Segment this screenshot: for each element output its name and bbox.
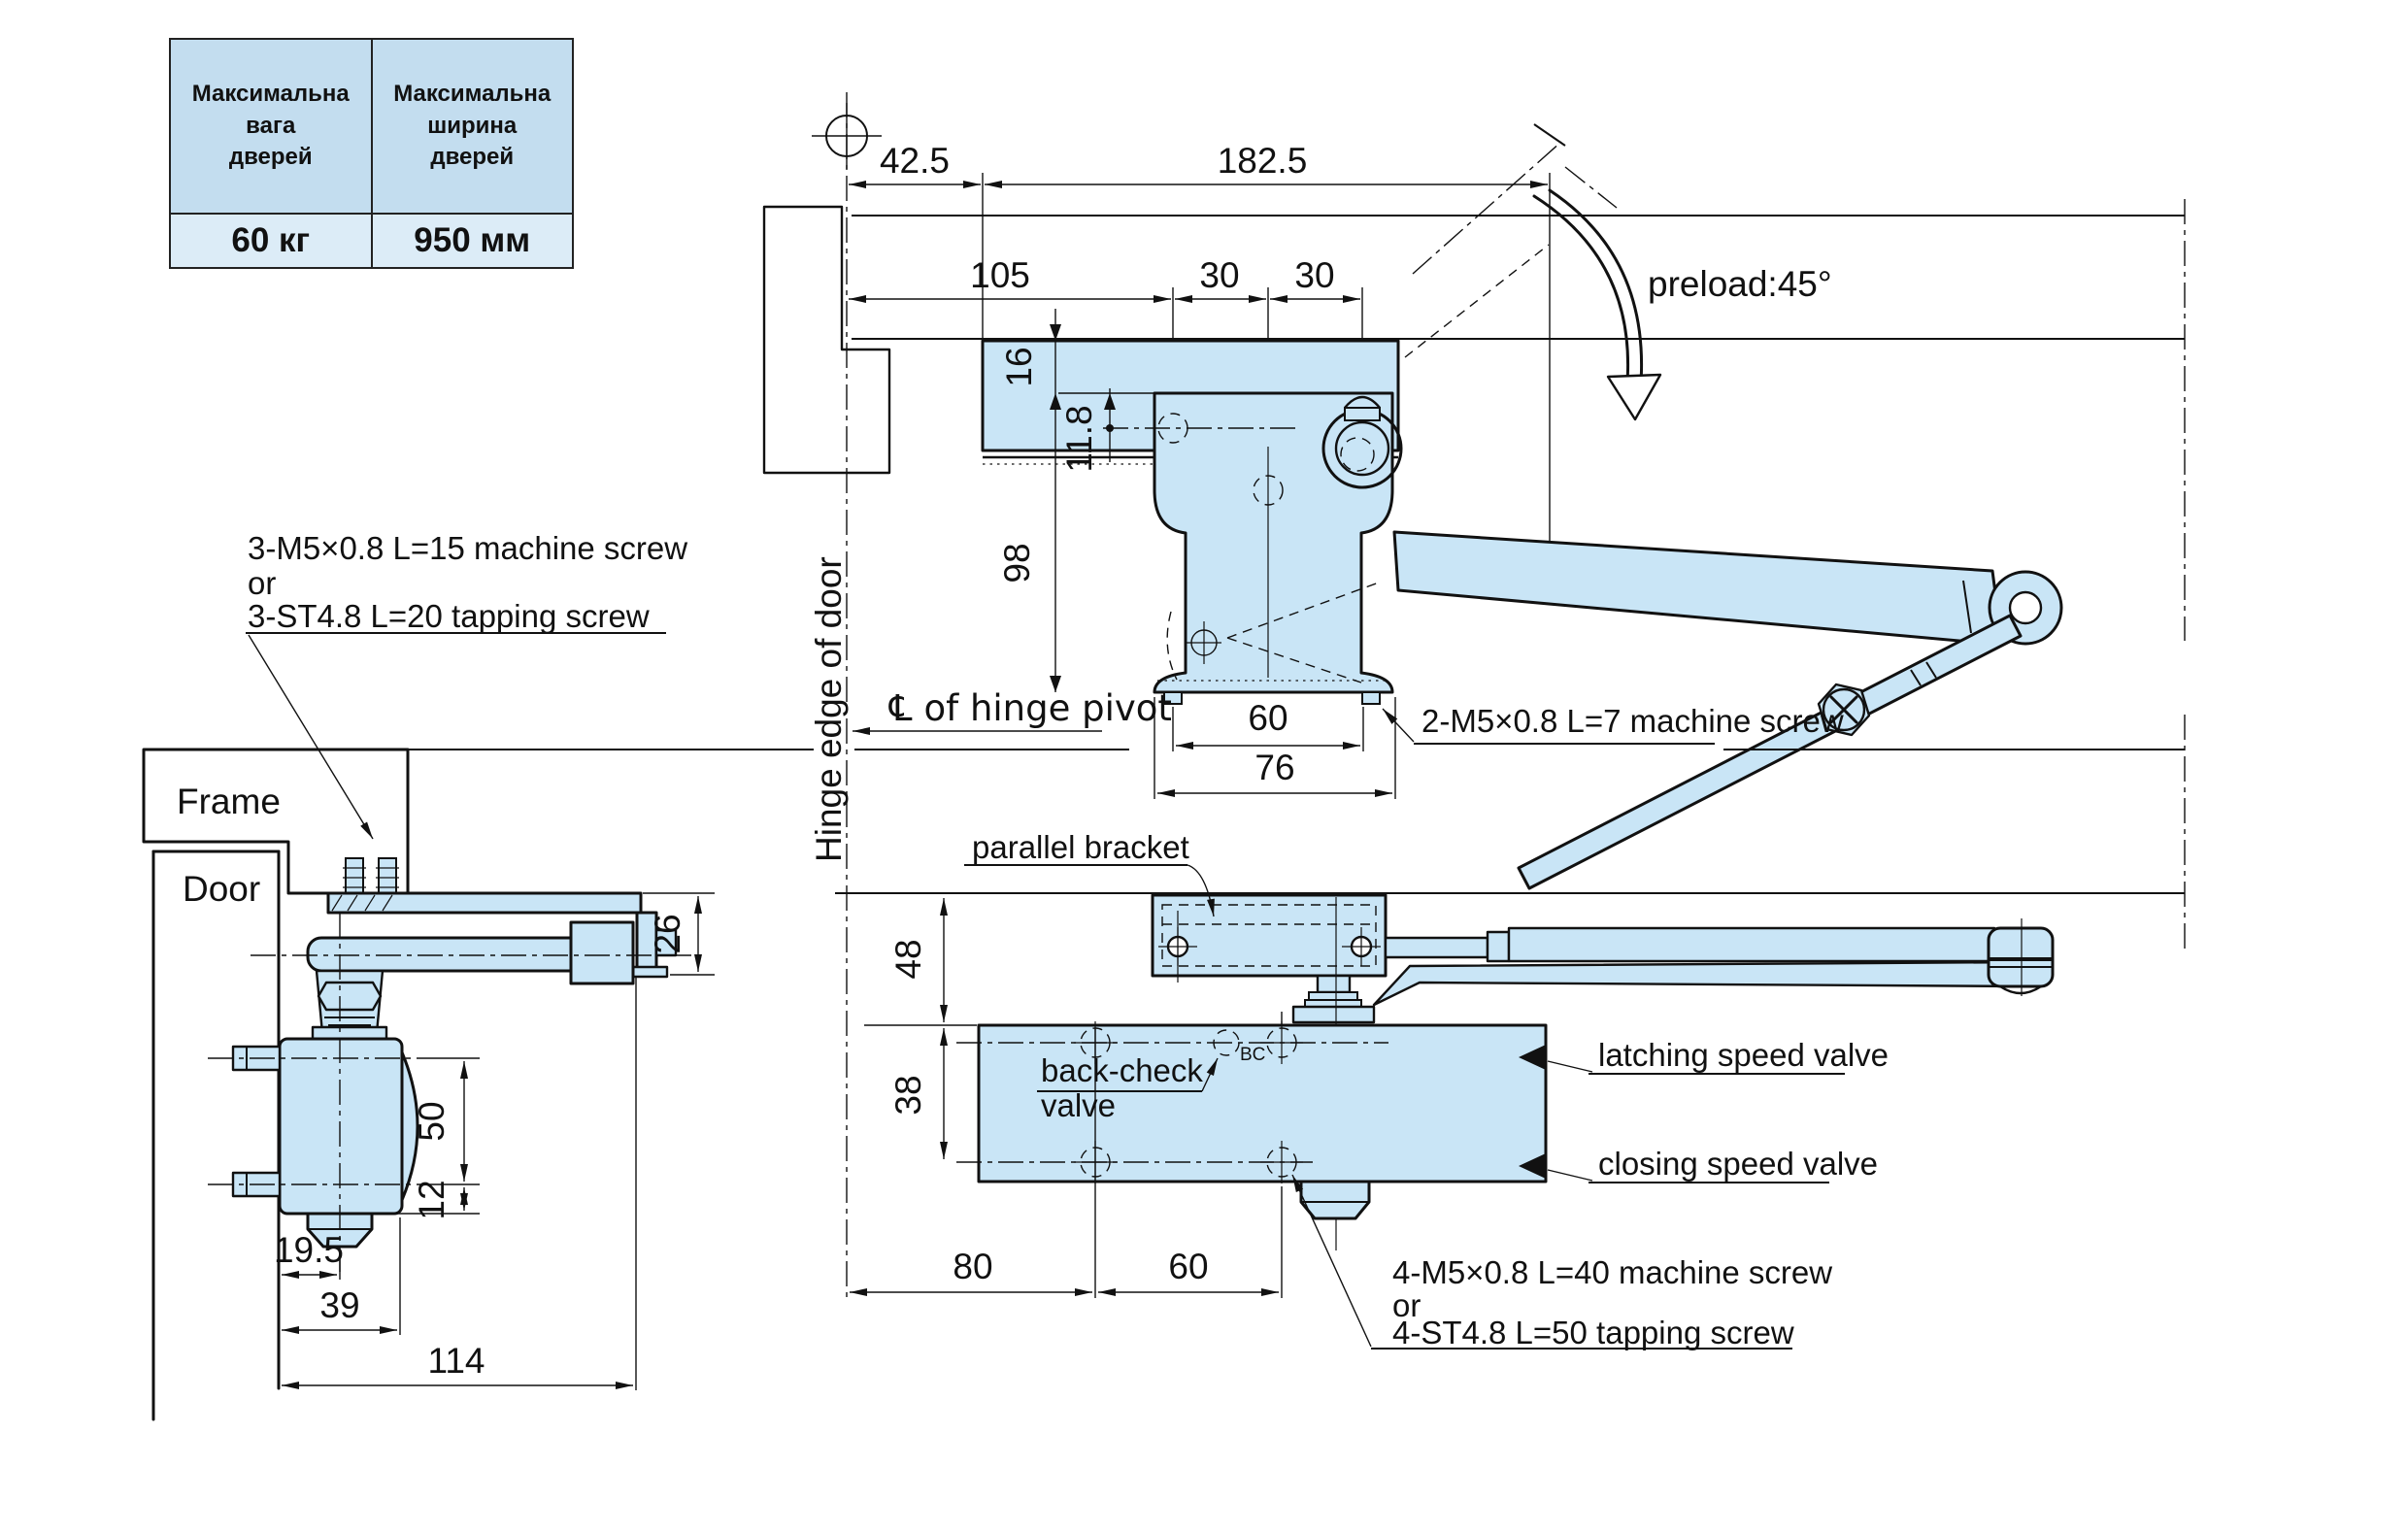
label-frame: Frame (177, 782, 281, 821)
label-closing: closing speed valve (1598, 1146, 1878, 1182)
preload-annotation: preload:45° (1405, 124, 1832, 419)
note-4m5-line3: 4-ST4.8 L=50 tapping screw (1392, 1315, 1794, 1350)
note-3m5: 3-M5×0.8 L=15 machine screw or 3-ST4.8 L… (246, 530, 687, 839)
note-4m5: 4-M5×0.8 L=40 machine screw or 4-ST4.8 L… (1292, 1175, 1832, 1350)
main-arm (1394, 532, 2061, 645)
closer-body-plan (1154, 393, 1392, 692)
note-latching-valve: latching speed valve (1519, 1037, 1889, 1074)
side-view: Frame Door 3-M5×0.8 L=15 machine screw o… (144, 530, 715, 1419)
preload-arrowhead-icon (1608, 375, 1660, 419)
header-line: дверей (229, 142, 313, 173)
datum-target-icon (812, 103, 882, 169)
dim-182-5: 182.5 (1218, 141, 1308, 181)
dim-16: 16 (999, 347, 1039, 386)
mounting-screw-right (1362, 692, 1380, 704)
note-4m5-line1: 4-M5×0.8 L=40 machine screw (1392, 1254, 1832, 1290)
label-hinge-edge-of-door: Hinge edge of door (809, 556, 849, 862)
dim-98: 98 (997, 543, 1037, 583)
dim-26: 26 (648, 914, 687, 953)
spec-value-max-weight: 60 кг (171, 215, 371, 267)
spec-header-max-weight: Максимальна вага дверей (171, 40, 371, 213)
dim-80: 80 (953, 1247, 992, 1286)
spec-table-header-row: Максимальна вага дверей Максимальна шири… (171, 40, 572, 213)
dim-60-parallel: 60 (1168, 1247, 1208, 1286)
header-line: Максимальна (192, 79, 350, 110)
parallel-bracket (1153, 895, 1386, 983)
dim-42-5: 42.5 (880, 141, 950, 181)
label-cl-hinge-pivot: ℄ of hinge pivot (888, 687, 1172, 729)
dim-19-5: 19.5 (274, 1230, 344, 1270)
note-3m5-line3: 3-ST4.8 L=20 tapping screw (248, 598, 650, 634)
label-preload: preload:45° (1648, 264, 1832, 304)
door-closer-installation-drawing: 42.5 182.5 105 30 30 (0, 0, 2408, 1533)
note-2m5: 2-M5×0.8 L=7 machine screw (1383, 703, 1844, 744)
dim-11-8: 11.8 (1059, 405, 1099, 472)
dim-12: 12 (412, 1180, 451, 1219)
label-bc: BC (1240, 1045, 1265, 1065)
cl-of-hinge-pivot: ℄ of hinge pivot (853, 687, 1172, 731)
spec-table-value-row: 60 кг 950 мм (171, 213, 572, 267)
dim-105: 105 (970, 255, 1030, 295)
dim-30-right: 30 (1294, 255, 1334, 295)
door-section (153, 851, 279, 1419)
header-line: дверей (430, 142, 514, 173)
header-line: Максимальна (393, 79, 551, 110)
bottom-dims: 60 76 (1154, 697, 1395, 799)
dim-114: 114 (428, 1341, 485, 1381)
dim-48-38-group: 48 38 (864, 898, 977, 1159)
spec-header-max-width: Максимальна ширина дверей (371, 40, 573, 213)
label-door: Door (183, 869, 260, 909)
dim-50: 50 (412, 1101, 451, 1141)
dim-30-left: 30 (1199, 255, 1239, 295)
label-parallel-bracket: parallel bracket (972, 829, 1189, 865)
dim-48: 48 (888, 939, 928, 979)
elbow-bolt-stack (1293, 976, 1374, 1025)
parallel-arm-view: 48 38 parallel bracket (408, 715, 2185, 1350)
label-back-check-1: back-check (1041, 1052, 1203, 1088)
forearm-rod (1519, 616, 2021, 888)
dim-60: 60 (1248, 698, 1288, 738)
header-line: ширина (427, 111, 517, 142)
note-3m5-line2: or (248, 565, 276, 601)
header-line: вага (246, 111, 295, 142)
dim-38: 38 (888, 1075, 928, 1115)
dim-76: 76 (1254, 748, 1294, 787)
pinion-stack (313, 971, 386, 1039)
dim-39: 39 (319, 1285, 359, 1325)
spec-table: Максимальна вага дверей Максимальна шири… (169, 38, 574, 269)
label-back-check-2: valve (1041, 1087, 1116, 1123)
note-2m5-text: 2-M5×0.8 L=7 machine screw (1421, 703, 1844, 739)
label-latching: latching speed valve (1598, 1037, 1889, 1073)
pinion-lug (1301, 1182, 1369, 1218)
spec-value-max-width: 950 мм (371, 215, 573, 267)
note-3m5-line1: 3-M5×0.8 L=15 machine screw (248, 530, 687, 566)
note-closing-valve: closing speed valve (1519, 1146, 1878, 1183)
